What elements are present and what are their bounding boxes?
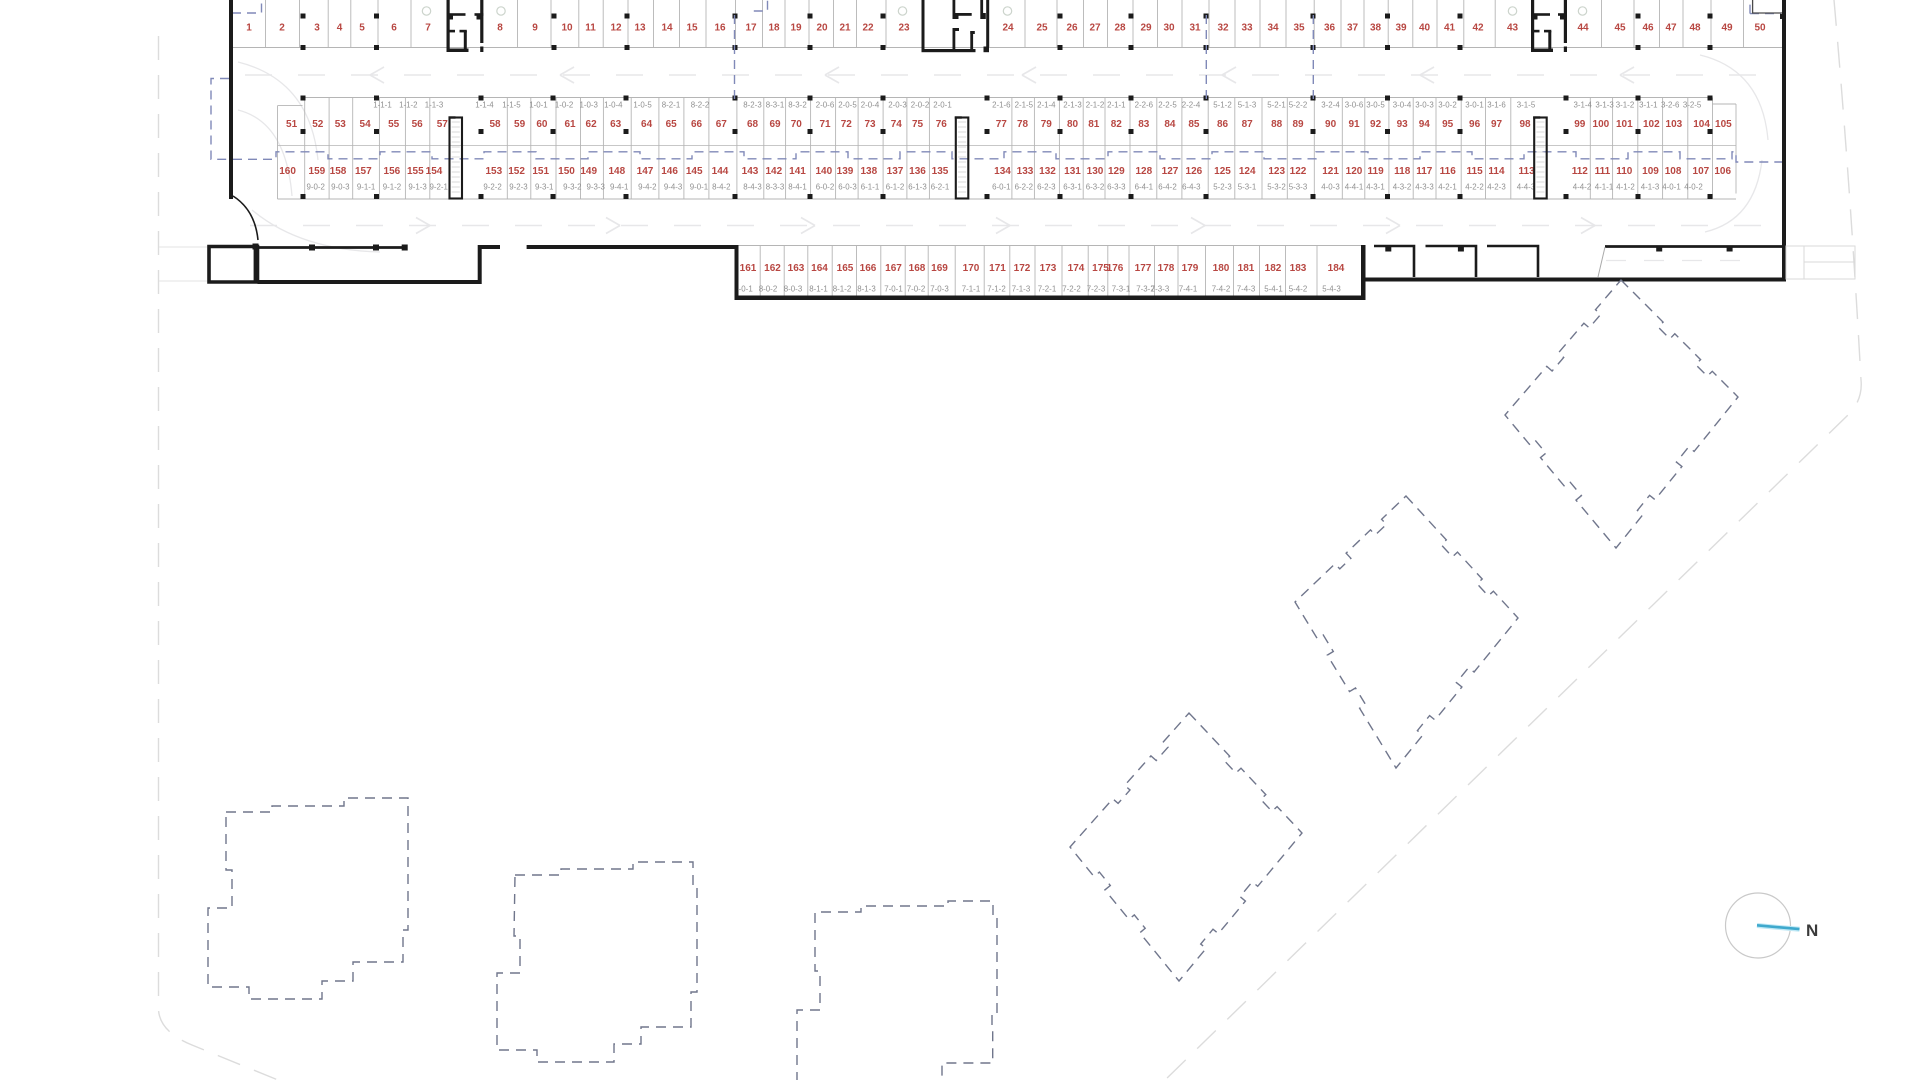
svg-text:157: 157 bbox=[355, 166, 372, 177]
svg-text:174: 174 bbox=[1068, 263, 1085, 274]
svg-text:2-0-2: 2-0-2 bbox=[911, 101, 929, 110]
svg-text:4: 4 bbox=[337, 23, 343, 34]
svg-text:85: 85 bbox=[1188, 119, 1200, 130]
svg-text:120: 120 bbox=[1346, 166, 1363, 177]
svg-text:96: 96 bbox=[1469, 119, 1481, 130]
svg-text:74: 74 bbox=[891, 119, 903, 130]
svg-text:128: 128 bbox=[1135, 166, 1152, 177]
svg-text:131: 131 bbox=[1064, 166, 1081, 177]
svg-text:2-1-2: 2-1-2 bbox=[1086, 101, 1104, 110]
svg-text:7-3-1: 7-3-1 bbox=[1112, 285, 1130, 294]
svg-text:7-1-3: 7-1-3 bbox=[1012, 285, 1031, 294]
svg-text:1-0-5: 1-0-5 bbox=[633, 101, 652, 110]
svg-text:52: 52 bbox=[312, 119, 324, 130]
svg-text:133: 133 bbox=[1017, 166, 1034, 177]
svg-text:6-1-3: 6-1-3 bbox=[908, 183, 927, 192]
svg-text:6-4-1: 6-4-1 bbox=[1135, 183, 1153, 192]
svg-text:7-1-1: 7-1-1 bbox=[962, 285, 980, 294]
svg-text:18: 18 bbox=[768, 23, 780, 34]
svg-text:84: 84 bbox=[1164, 119, 1176, 130]
svg-text:9-3-3: 9-3-3 bbox=[586, 183, 605, 192]
svg-text:139: 139 bbox=[837, 166, 854, 177]
svg-text:5-2-3: 5-2-3 bbox=[1213, 183, 1232, 192]
svg-text:44: 44 bbox=[1577, 23, 1589, 34]
svg-text:8-1-2: 8-1-2 bbox=[833, 285, 851, 294]
svg-text:9-2-1: 9-2-1 bbox=[429, 183, 447, 192]
svg-text:38: 38 bbox=[1370, 23, 1382, 34]
svg-text:12: 12 bbox=[610, 23, 622, 34]
svg-text:5-4-1: 5-4-1 bbox=[1264, 285, 1282, 294]
svg-text:102: 102 bbox=[1643, 119, 1660, 130]
svg-text:9-3-2: 9-3-2 bbox=[563, 183, 581, 192]
svg-text:106: 106 bbox=[1714, 166, 1731, 177]
svg-text:6-1-1: 6-1-1 bbox=[861, 183, 879, 192]
svg-text:56: 56 bbox=[412, 119, 424, 130]
svg-text:178: 178 bbox=[1158, 263, 1175, 274]
svg-text:127: 127 bbox=[1162, 166, 1179, 177]
svg-text:9-0-1: 9-0-1 bbox=[690, 183, 708, 192]
svg-text:8-2-3: 8-2-3 bbox=[743, 101, 762, 110]
svg-text:103: 103 bbox=[1666, 119, 1683, 130]
svg-text:143: 143 bbox=[742, 166, 759, 177]
svg-text:168: 168 bbox=[909, 263, 926, 274]
svg-text:5-4-3: 5-4-3 bbox=[1322, 285, 1341, 294]
svg-text:53: 53 bbox=[335, 119, 347, 130]
svg-text:7-1-2: 7-1-2 bbox=[987, 285, 1005, 294]
svg-text:14: 14 bbox=[661, 23, 673, 34]
svg-text:164: 164 bbox=[811, 263, 828, 274]
svg-text:176: 176 bbox=[1107, 263, 1124, 274]
svg-text:8-4-2: 8-4-2 bbox=[712, 183, 730, 192]
svg-text:7-0-3: 7-0-3 bbox=[930, 285, 949, 294]
svg-text:1-1-3: 1-1-3 bbox=[425, 101, 444, 110]
svg-text:43: 43 bbox=[1507, 23, 1519, 34]
svg-text:76: 76 bbox=[936, 119, 948, 130]
svg-text:91: 91 bbox=[1348, 119, 1360, 130]
svg-text:6-3-2: 6-3-2 bbox=[1086, 183, 1104, 192]
svg-text:150: 150 bbox=[558, 166, 575, 177]
svg-text:3-1-4: 3-1-4 bbox=[1573, 101, 1592, 110]
svg-text:2-2-6: 2-2-6 bbox=[1135, 101, 1154, 110]
svg-text:6-3-3: 6-3-3 bbox=[1107, 183, 1126, 192]
svg-text:39: 39 bbox=[1395, 23, 1407, 34]
svg-text:155: 155 bbox=[407, 166, 424, 177]
svg-text:69: 69 bbox=[769, 119, 781, 130]
svg-text:45: 45 bbox=[1614, 23, 1626, 34]
svg-text:8-1-3: 8-1-3 bbox=[857, 285, 876, 294]
svg-text:40: 40 bbox=[1419, 23, 1431, 34]
svg-text:153: 153 bbox=[485, 166, 502, 177]
svg-text:7-2-3: 7-2-3 bbox=[1087, 285, 1106, 294]
svg-text:7-0-1: 7-0-1 bbox=[884, 285, 902, 294]
svg-text:182: 182 bbox=[1265, 263, 1282, 274]
svg-text:134: 134 bbox=[994, 166, 1011, 177]
svg-text:116: 116 bbox=[1440, 166, 1457, 177]
svg-text:6: 6 bbox=[391, 23, 397, 34]
svg-text:112: 112 bbox=[1572, 166, 1589, 177]
svg-text:51: 51 bbox=[286, 119, 298, 130]
svg-text:130: 130 bbox=[1087, 166, 1104, 177]
svg-text:4-0-2: 4-0-2 bbox=[1684, 183, 1702, 192]
svg-text:4-2-2: 4-2-2 bbox=[1465, 183, 1483, 192]
svg-text:80: 80 bbox=[1067, 119, 1079, 130]
svg-text:160: 160 bbox=[279, 166, 296, 177]
svg-text:151: 151 bbox=[532, 166, 549, 177]
svg-text:94: 94 bbox=[1419, 119, 1431, 130]
svg-text:5-4-2: 5-4-2 bbox=[1289, 285, 1307, 294]
svg-text:2: 2 bbox=[279, 23, 285, 34]
svg-text:6-0-1: 6-0-1 bbox=[992, 183, 1010, 192]
svg-text:77: 77 bbox=[996, 119, 1008, 130]
svg-text:3: 3 bbox=[314, 23, 320, 34]
svg-text:31: 31 bbox=[1189, 23, 1201, 34]
svg-text:1-0-3: 1-0-3 bbox=[579, 101, 598, 110]
svg-text:148: 148 bbox=[608, 166, 625, 177]
svg-text:6-3-1: 6-3-1 bbox=[1063, 183, 1081, 192]
svg-text:55: 55 bbox=[388, 119, 400, 130]
svg-text:9-1-1: 9-1-1 bbox=[357, 183, 375, 192]
svg-text:162: 162 bbox=[764, 263, 781, 274]
svg-text:149: 149 bbox=[580, 166, 597, 177]
svg-text:99: 99 bbox=[1574, 119, 1586, 130]
svg-text:173: 173 bbox=[1040, 263, 1057, 274]
svg-text:4-1-3: 4-1-3 bbox=[1641, 183, 1660, 192]
svg-text:8-3-2: 8-3-2 bbox=[788, 101, 806, 110]
svg-text:10: 10 bbox=[561, 23, 573, 34]
svg-text:3-2-5: 3-2-5 bbox=[1683, 101, 1702, 110]
svg-text:125: 125 bbox=[1214, 166, 1231, 177]
svg-text:4-0-3: 4-0-3 bbox=[1321, 183, 1340, 192]
svg-text:144: 144 bbox=[712, 166, 729, 177]
svg-text:141: 141 bbox=[789, 166, 806, 177]
svg-text:61: 61 bbox=[564, 119, 576, 130]
svg-text:124: 124 bbox=[1239, 166, 1256, 177]
svg-text:66: 66 bbox=[691, 119, 703, 130]
svg-text:132: 132 bbox=[1039, 166, 1056, 177]
svg-text:126: 126 bbox=[1186, 166, 1203, 177]
svg-text:1-0-1: 1-0-1 bbox=[529, 101, 547, 110]
svg-text:9-4-1: 9-4-1 bbox=[610, 183, 628, 192]
svg-text:4-4-3: 4-4-3 bbox=[1517, 183, 1536, 192]
svg-text:15: 15 bbox=[686, 23, 698, 34]
svg-text:183: 183 bbox=[1290, 263, 1307, 274]
svg-text:48: 48 bbox=[1689, 23, 1701, 34]
svg-text:8-4-3: 8-4-3 bbox=[743, 183, 762, 192]
svg-text:8-3-1: 8-3-1 bbox=[766, 101, 784, 110]
svg-text:9-2-2: 9-2-2 bbox=[483, 183, 501, 192]
svg-text:6-0-2: 6-0-2 bbox=[816, 183, 834, 192]
svg-text:4-3-2: 4-3-2 bbox=[1393, 183, 1411, 192]
svg-text:3-1-1: 3-1-1 bbox=[1639, 101, 1657, 110]
svg-text:6-0-3: 6-0-3 bbox=[838, 183, 857, 192]
svg-text:9: 9 bbox=[532, 23, 538, 34]
svg-text:3-0-6: 3-0-6 bbox=[1345, 101, 1364, 110]
svg-text:179: 179 bbox=[1182, 263, 1199, 274]
svg-text:118: 118 bbox=[1394, 166, 1411, 177]
svg-text:163: 163 bbox=[788, 263, 805, 274]
svg-text:81: 81 bbox=[1088, 119, 1100, 130]
svg-text:8-2-2: 8-2-2 bbox=[691, 101, 709, 110]
svg-text:4-0-1: 4-0-1 bbox=[1662, 183, 1680, 192]
svg-text:158: 158 bbox=[330, 166, 347, 177]
svg-text:165: 165 bbox=[837, 263, 854, 274]
svg-text:4-1-1: 4-1-1 bbox=[1595, 183, 1613, 192]
svg-text:107: 107 bbox=[1693, 166, 1710, 177]
svg-text:46: 46 bbox=[1642, 23, 1654, 34]
svg-text:23: 23 bbox=[898, 23, 910, 34]
svg-text:36: 36 bbox=[1324, 23, 1336, 34]
svg-text:54: 54 bbox=[360, 119, 372, 130]
svg-text:50: 50 bbox=[1754, 23, 1766, 34]
svg-text:184: 184 bbox=[1328, 263, 1345, 274]
svg-text:21: 21 bbox=[839, 23, 851, 34]
svg-text:8-3-3: 8-3-3 bbox=[766, 183, 785, 192]
svg-text:152: 152 bbox=[508, 166, 525, 177]
svg-text:42: 42 bbox=[1472, 23, 1484, 34]
svg-text:161: 161 bbox=[740, 263, 757, 274]
svg-text:2-0-1: 2-0-1 bbox=[933, 101, 951, 110]
svg-text:4-3-1: 4-3-1 bbox=[1366, 183, 1384, 192]
svg-text:32: 32 bbox=[1217, 23, 1229, 34]
svg-text:6-2-2: 6-2-2 bbox=[1015, 183, 1033, 192]
svg-text:34: 34 bbox=[1267, 23, 1279, 34]
svg-text:147: 147 bbox=[637, 166, 654, 177]
svg-text:13: 13 bbox=[634, 23, 646, 34]
svg-text:75: 75 bbox=[912, 119, 924, 130]
svg-text:7-4-1: 7-4-1 bbox=[1179, 285, 1197, 294]
svg-text:9-0-2: 9-0-2 bbox=[306, 183, 324, 192]
svg-text:5-2-2: 5-2-2 bbox=[1289, 101, 1307, 110]
svg-text:146: 146 bbox=[661, 166, 678, 177]
svg-text:41: 41 bbox=[1444, 23, 1456, 34]
svg-text:169: 169 bbox=[931, 263, 948, 274]
svg-text:181: 181 bbox=[1238, 263, 1255, 274]
svg-text:87: 87 bbox=[1242, 119, 1254, 130]
svg-text:68: 68 bbox=[747, 119, 759, 130]
svg-text:3-1-5: 3-1-5 bbox=[1517, 101, 1536, 110]
svg-text:3-1-3: 3-1-3 bbox=[1595, 101, 1614, 110]
svg-text:108: 108 bbox=[1665, 166, 1682, 177]
svg-text:4-2-1: 4-2-1 bbox=[1438, 183, 1456, 192]
svg-text:1-1-1: 1-1-1 bbox=[373, 101, 391, 110]
svg-text:79: 79 bbox=[1041, 119, 1053, 130]
svg-text:3-0-1: 3-0-1 bbox=[1465, 101, 1483, 110]
svg-text:78: 78 bbox=[1017, 119, 1029, 130]
svg-text:8-1-1: 8-1-1 bbox=[809, 285, 827, 294]
svg-text:3-0-4: 3-0-4 bbox=[1393, 101, 1412, 110]
svg-text:3-1-6: 3-1-6 bbox=[1487, 101, 1506, 110]
svg-text:115: 115 bbox=[1467, 166, 1484, 177]
svg-text:142: 142 bbox=[765, 166, 782, 177]
svg-text:1-0-2: 1-0-2 bbox=[555, 101, 573, 110]
svg-text:83: 83 bbox=[1138, 119, 1150, 130]
svg-text:5-1-3: 5-1-3 bbox=[1238, 101, 1257, 110]
svg-text:3-0-3: 3-0-3 bbox=[1415, 101, 1434, 110]
svg-text:180: 180 bbox=[1213, 263, 1230, 274]
svg-text:17: 17 bbox=[745, 23, 757, 34]
svg-text:33: 33 bbox=[1241, 23, 1253, 34]
svg-text:24: 24 bbox=[1002, 23, 1014, 34]
svg-text:122: 122 bbox=[1290, 166, 1307, 177]
svg-text:27: 27 bbox=[1089, 23, 1101, 34]
svg-text:7-2-2: 7-2-2 bbox=[1062, 285, 1080, 294]
svg-text:35: 35 bbox=[1293, 23, 1305, 34]
svg-text:7-2-1: 7-2-1 bbox=[1038, 285, 1056, 294]
svg-text:4-3-3: 4-3-3 bbox=[1415, 183, 1434, 192]
svg-text:2-1-6: 2-1-6 bbox=[992, 101, 1011, 110]
svg-text:86: 86 bbox=[1217, 119, 1229, 130]
svg-text:25: 25 bbox=[1036, 23, 1048, 34]
svg-text:59: 59 bbox=[514, 119, 526, 130]
svg-text:6-1-2: 6-1-2 bbox=[886, 183, 904, 192]
svg-text:1: 1 bbox=[246, 23, 252, 34]
svg-text:7-4-2: 7-4-2 bbox=[1212, 285, 1230, 294]
svg-text:65: 65 bbox=[666, 119, 678, 130]
svg-text:82: 82 bbox=[1111, 119, 1123, 130]
svg-text:8-2-1: 8-2-1 bbox=[662, 101, 680, 110]
svg-text:121: 121 bbox=[1322, 166, 1339, 177]
svg-text:7-4-3: 7-4-3 bbox=[1237, 285, 1256, 294]
svg-text:67: 67 bbox=[716, 119, 728, 130]
svg-text:9-3-1: 9-3-1 bbox=[535, 183, 553, 192]
svg-text:7: 7 bbox=[425, 23, 431, 34]
svg-text:64: 64 bbox=[641, 119, 653, 130]
svg-text:6-4-2: 6-4-2 bbox=[1158, 183, 1176, 192]
svg-text:156: 156 bbox=[384, 166, 401, 177]
svg-text:20: 20 bbox=[816, 23, 828, 34]
svg-text:49: 49 bbox=[1721, 23, 1733, 34]
svg-text:105: 105 bbox=[1715, 119, 1732, 130]
svg-text:N: N bbox=[1806, 921, 1818, 940]
svg-text:154: 154 bbox=[426, 166, 443, 177]
svg-text:159: 159 bbox=[309, 166, 326, 177]
svg-text:1-0-4: 1-0-4 bbox=[604, 101, 623, 110]
svg-text:9-4-2: 9-4-2 bbox=[638, 183, 656, 192]
svg-text:26: 26 bbox=[1066, 23, 1078, 34]
svg-text:8: 8 bbox=[497, 23, 503, 34]
svg-text:4-1-2: 4-1-2 bbox=[1616, 183, 1634, 192]
svg-text:8-0-3: 8-0-3 bbox=[784, 285, 803, 294]
svg-text:140: 140 bbox=[815, 166, 832, 177]
svg-text:113: 113 bbox=[1519, 166, 1536, 177]
svg-text:57: 57 bbox=[437, 119, 449, 130]
svg-text:6-2-3: 6-2-3 bbox=[1037, 183, 1056, 192]
svg-text:2-1-3: 2-1-3 bbox=[1063, 101, 1082, 110]
svg-text:30: 30 bbox=[1163, 23, 1175, 34]
svg-text:29: 29 bbox=[1140, 23, 1152, 34]
svg-text:177: 177 bbox=[1135, 263, 1152, 274]
svg-text:37: 37 bbox=[1347, 23, 1359, 34]
svg-text:2-2-4: 2-2-4 bbox=[1182, 101, 1201, 110]
svg-text:70: 70 bbox=[791, 119, 803, 130]
svg-text:7-0-2: 7-0-2 bbox=[907, 285, 925, 294]
svg-text:100: 100 bbox=[1593, 119, 1610, 130]
svg-text:19: 19 bbox=[790, 23, 802, 34]
svg-text:117: 117 bbox=[1416, 166, 1433, 177]
svg-text:3-0-5: 3-0-5 bbox=[1366, 101, 1385, 110]
svg-text:8-0-2: 8-0-2 bbox=[759, 285, 777, 294]
svg-text:101: 101 bbox=[1616, 119, 1633, 130]
svg-text:167: 167 bbox=[885, 263, 902, 274]
svg-text:135: 135 bbox=[932, 166, 949, 177]
svg-text:2-0-5: 2-0-5 bbox=[838, 101, 857, 110]
svg-text:2-1-5: 2-1-5 bbox=[1015, 101, 1034, 110]
svg-text:63: 63 bbox=[610, 119, 622, 130]
svg-text:2-0-4: 2-0-4 bbox=[861, 101, 880, 110]
svg-text:2-0-6: 2-0-6 bbox=[816, 101, 835, 110]
svg-text:3-2-6: 3-2-6 bbox=[1661, 101, 1680, 110]
svg-text:9-0-3: 9-0-3 bbox=[331, 183, 350, 192]
svg-text:2-1-1: 2-1-1 bbox=[1107, 101, 1125, 110]
svg-text:104: 104 bbox=[1693, 119, 1710, 130]
svg-text:97: 97 bbox=[1491, 119, 1503, 130]
svg-text:109: 109 bbox=[1642, 166, 1659, 177]
svg-text:3-1-2: 3-1-2 bbox=[1616, 101, 1634, 110]
svg-text:22: 22 bbox=[862, 23, 874, 34]
svg-text:8-4-1: 8-4-1 bbox=[788, 183, 806, 192]
svg-text:172: 172 bbox=[1014, 263, 1031, 274]
svg-text:2-1-4: 2-1-4 bbox=[1037, 101, 1056, 110]
svg-text:110: 110 bbox=[1616, 166, 1633, 177]
svg-text:60: 60 bbox=[536, 119, 548, 130]
svg-text:145: 145 bbox=[686, 166, 703, 177]
svg-text:5-3-1: 5-3-1 bbox=[1238, 183, 1256, 192]
svg-text:93: 93 bbox=[1397, 119, 1409, 130]
svg-text:5-3-2: 5-3-2 bbox=[1267, 183, 1285, 192]
svg-text:89: 89 bbox=[1292, 119, 1304, 130]
svg-text:170: 170 bbox=[963, 263, 980, 274]
svg-text:2-2-5: 2-2-5 bbox=[1158, 101, 1177, 110]
svg-text:90: 90 bbox=[1325, 119, 1337, 130]
svg-text:28: 28 bbox=[1114, 23, 1126, 34]
svg-text:73: 73 bbox=[864, 119, 876, 130]
svg-text:171: 171 bbox=[989, 263, 1006, 274]
svg-text:72: 72 bbox=[841, 119, 853, 130]
svg-text:137: 137 bbox=[887, 166, 904, 177]
svg-text:62: 62 bbox=[586, 119, 598, 130]
svg-text:111: 111 bbox=[1595, 166, 1611, 177]
svg-text:92: 92 bbox=[1370, 119, 1382, 130]
svg-text:11: 11 bbox=[585, 23, 596, 34]
svg-text:9-1-2: 9-1-2 bbox=[383, 183, 401, 192]
svg-text:119: 119 bbox=[1368, 166, 1385, 177]
svg-text:3-2-4: 3-2-4 bbox=[1321, 101, 1340, 110]
svg-text:9-2-3: 9-2-3 bbox=[509, 183, 528, 192]
svg-text:95: 95 bbox=[1442, 119, 1454, 130]
svg-text:114: 114 bbox=[1488, 166, 1505, 177]
svg-text:6-4-3: 6-4-3 bbox=[1182, 183, 1201, 192]
svg-text:1-1-5: 1-1-5 bbox=[502, 101, 521, 110]
svg-text:98: 98 bbox=[1519, 119, 1531, 130]
svg-text:4-4-2: 4-4-2 bbox=[1573, 183, 1591, 192]
svg-text:47: 47 bbox=[1665, 23, 1677, 34]
svg-text:7-3-3: 7-3-3 bbox=[1151, 285, 1170, 294]
svg-text:129: 129 bbox=[1108, 166, 1125, 177]
svg-text:5-3-3: 5-3-3 bbox=[1289, 183, 1308, 192]
svg-text:58: 58 bbox=[489, 119, 501, 130]
svg-text:9-4-3: 9-4-3 bbox=[664, 183, 683, 192]
svg-text:3-0-2: 3-0-2 bbox=[1438, 101, 1456, 110]
svg-text:138: 138 bbox=[860, 166, 877, 177]
svg-text:123: 123 bbox=[1268, 166, 1285, 177]
svg-text:6-2-1: 6-2-1 bbox=[931, 183, 949, 192]
svg-text:71: 71 bbox=[819, 119, 831, 130]
svg-text:136: 136 bbox=[909, 166, 926, 177]
svg-text:5: 5 bbox=[359, 23, 365, 34]
svg-text:1-1-2: 1-1-2 bbox=[399, 101, 417, 110]
svg-text:16: 16 bbox=[714, 23, 726, 34]
svg-text:5-2-1: 5-2-1 bbox=[1267, 101, 1285, 110]
